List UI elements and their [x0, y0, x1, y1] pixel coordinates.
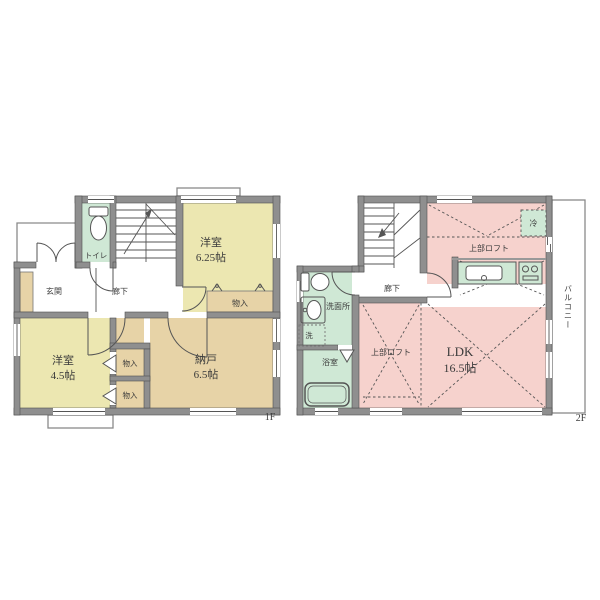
label-loft-left: 上部ロフト: [371, 347, 411, 357]
wall: [110, 376, 150, 381]
wall: [110, 196, 116, 268]
ldk-main-area: [420, 307, 546, 408]
wall: [75, 196, 82, 268]
wall: [358, 196, 364, 272]
label-west-room-625: 洋室: [200, 235, 222, 249]
floor2-plan: バルコニー: [297, 196, 587, 424]
label-storage-room: 納戸: [195, 353, 217, 366]
kitchen-floor: [427, 284, 546, 307]
label-washer: 洗: [305, 330, 313, 340]
wall: [14, 312, 88, 318]
shoe-cabinet: [20, 272, 33, 312]
label-fridge: 冷: [530, 218, 538, 228]
label-hallway-1f: 廊下: [112, 286, 128, 296]
bathroom-door-opening: [338, 345, 352, 350]
label-entrance: 玄関: [46, 286, 62, 296]
label-hallway-2f: 廊下: [384, 283, 400, 293]
label-storage-room-size: 6.5帖: [194, 368, 219, 381]
label-west-room-45: 洋室: [52, 353, 74, 367]
wall: [110, 405, 116, 408]
label-loft-top: 上部ロフト: [469, 243, 509, 253]
kitchen-sink-icon: [466, 266, 502, 280]
toilet-tank-icon: [301, 273, 309, 291]
floor2-label: 2F: [576, 413, 587, 424]
wall: [546, 196, 552, 415]
floor1-label: 1F: [265, 412, 276, 423]
wall: [420, 196, 427, 273]
stairs-down-arrow: [378, 228, 386, 238]
floor1-plan: トイレ 洋室 6.25帖 玄関 廊下 洋室 4.5帖 納戸 6.5帖 物入 物入…: [14, 188, 280, 428]
balcony: バルコニー: [552, 200, 585, 413]
toilet-tank-icon: [89, 207, 108, 216]
label-closet-a: 物入: [123, 358, 138, 368]
stove: [519, 262, 542, 284]
toilet-door: [90, 268, 113, 291]
balcony-door: [546, 237, 552, 252]
wall: [14, 262, 36, 268]
toilet-bowl-icon: [91, 216, 107, 240]
toilet-bowl-icon: [311, 274, 329, 291]
entry-porch-outline: [17, 223, 77, 262]
label-closet-top: 物入: [232, 298, 248, 308]
label-ldk: LDK: [447, 344, 474, 359]
wall: [358, 297, 427, 303]
wall: [76, 262, 90, 268]
label-washroom: 洗面所: [326, 301, 350, 311]
kitchen-wall-stub: [452, 257, 458, 288]
label-west-room-45-size: 4.5帖: [51, 369, 76, 382]
floorplan-drawing: トイレ 洋室 6.25帖 玄関 廊下 洋室 4.5帖 納戸 6.5帖 物入 物入…: [0, 0, 600, 600]
entrance-door-right: [56, 243, 75, 262]
wall: [110, 343, 150, 349]
label-balcony: バルコニー: [564, 285, 573, 330]
terrace-1f: [48, 415, 113, 428]
stairs-2f: [364, 203, 420, 268]
wall: [176, 196, 183, 286]
room-storage-ext: [116, 318, 144, 343]
label-closet-b: 物入: [123, 390, 138, 400]
wall: [207, 312, 280, 318]
wall: [113, 262, 116, 268]
label-ldk-size: 16.5帖: [443, 360, 476, 375]
wall: [125, 312, 168, 318]
entrance-door-left: [37, 243, 56, 262]
wall: [352, 266, 359, 272]
floorplan-canvas: トイレ 洋室 6.25帖 玄関 廊下 洋室 4.5帖 納戸 6.5帖 物入 物入…: [0, 0, 600, 600]
bay-window-1f: [177, 188, 240, 196]
label-west-room-625-size: 6.25帖: [196, 251, 226, 264]
washbasin-icon: [307, 301, 321, 320]
label-bathroom: 浴室: [322, 357, 338, 367]
stairs-1f: [116, 203, 176, 262]
label-toilet: トイレ: [85, 251, 108, 260]
